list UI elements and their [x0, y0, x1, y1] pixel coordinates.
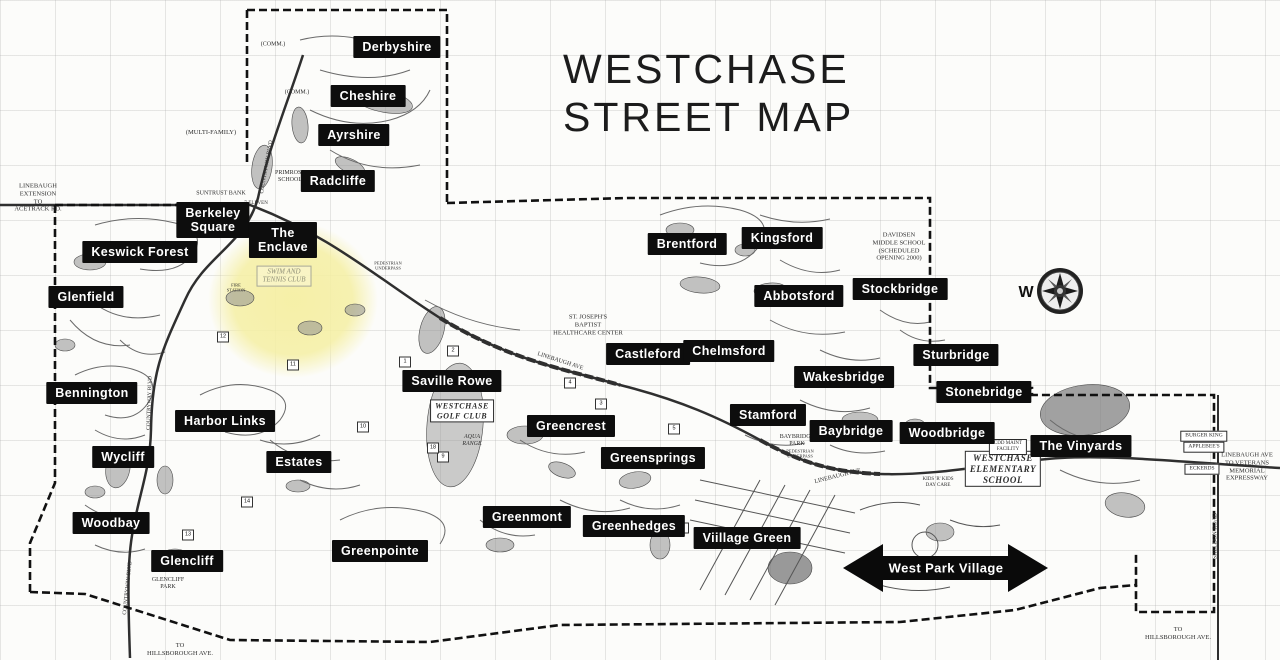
neighborhood-label-sturbridge: Sturbridge: [913, 344, 998, 366]
map-text-to-hillsborough-sw: TOHILLSBOROUGH AVE.: [147, 642, 213, 658]
map-text-applebees: APPLEBEE'S: [1183, 442, 1224, 453]
neighborhood-label-radcliffe: Radcliffe: [301, 170, 375, 192]
neighborhood-label-cheshire: Cheshire: [331, 85, 406, 107]
neighborhood-label-the-vinyards: The Vinyards: [1030, 435, 1131, 457]
neighborhood-label-castleford: Castleford: [606, 343, 690, 365]
map-text-to-hillsborough-se: TOHILLSBOROUGH AVE.: [1145, 626, 1211, 642]
golf-hole-marker-18: 18: [427, 443, 439, 454]
neighborhood-label-woodbay: Woodbay: [73, 512, 150, 534]
neighborhood-label-greenpointe: Greenpointe: [332, 540, 428, 562]
westchase-street-map: WESTCHASE STREET MAP W DerbyshireCheshir…: [0, 0, 1280, 660]
map-title-line2: STREET MAP: [563, 94, 854, 142]
neighborhood-label-greenhedges: Greenhedges: [583, 515, 685, 537]
map-text-burger-king: BURGER KING: [1180, 431, 1227, 442]
golf-hole-marker-4: 4: [564, 378, 576, 389]
golf-hole-marker-2: 2: [447, 346, 459, 357]
map-text-fire-station: FIRESTATION: [227, 283, 245, 294]
neighborhood-label-greensprings: Greensprings: [601, 447, 705, 469]
neighborhood-label-abbotsford: Abbotsford: [754, 285, 843, 307]
neighborhood-label-derbyshire: Derbyshire: [353, 36, 440, 58]
golf-hole-marker-5: 5: [668, 424, 680, 435]
map-text-sheldon-road: SHELDON ROAD: [1212, 513, 1219, 560]
neighborhood-label-the-enclave: TheEnclave: [249, 222, 317, 258]
neighborhood-label-bennington: Bennington: [46, 382, 137, 404]
neighborhood-label-kingsford: Kingsford: [742, 227, 823, 249]
neighborhood-label-greenmont: Greenmont: [483, 506, 571, 528]
neighborhood-label-stonebridge: Stonebridge: [936, 381, 1031, 403]
neighborhood-label-harbor-links: Harbor Links: [175, 410, 275, 432]
map-text-davidsen-school: DAVIDSENMIDDLE SCHOOL(SCHEDULEDOPENING 2…: [873, 231, 926, 262]
golf-hole-marker-3: 3: [595, 399, 607, 410]
neighborhood-label-brentford: Brentford: [648, 233, 727, 255]
map-text-linebaugh-veterans: LINEBAUGH AVETO VETERANSMEMORIALEXPRESSW…: [1221, 451, 1273, 482]
compass-west-letter: W: [1018, 284, 1033, 302]
map-text-comm-1: (COMM.): [261, 41, 286, 48]
neighborhood-label-chelmsford: Chelmsford: [683, 340, 774, 362]
neighborhood-label-greencrest: Greencrest: [527, 415, 615, 437]
neighborhood-label-saville-rowe: Saville Rowe: [402, 370, 501, 392]
neighborhood-label-village-green: Viillage Green: [694, 527, 801, 549]
neighborhood-label-glenfield: Glenfield: [48, 286, 123, 308]
golf-hole-marker-12: 12: [217, 332, 229, 343]
golf-hole-marker-1: 1: [399, 357, 411, 368]
map-text-comm-2: (COMM.): [285, 89, 310, 96]
map-text-glencliff-park: GLENCLIFFPARK: [152, 577, 184, 591]
neighborhood-label-stamford: Stamford: [730, 404, 806, 426]
neighborhood-label-keswick-forest: Keswick Forest: [82, 241, 197, 263]
map-text-multi-family: (MULTI-FAMILY): [186, 129, 236, 137]
map-title-line1: WESTCHASE: [563, 46, 854, 94]
map-text-st-josephs: ST. JOSEPH'SBAPTISTHEALTHCARE CENTER: [553, 313, 623, 336]
west-park-village-label: West Park Village: [889, 561, 1004, 576]
neighborhood-label-berkeley-square: BerkeleySquare: [176, 202, 249, 238]
map-text-eckerds: ECKERDS: [1184, 464, 1219, 475]
golf-hole-marker-13: 13: [182, 530, 194, 541]
map-text-swim-tennis-club: SWIM ANDTENNIS CLUB: [257, 266, 312, 287]
compass-rose-icon: [1037, 268, 1083, 314]
neighborhood-label-baybridge: Baybridge: [810, 420, 893, 442]
map-text-westchase-golf-club: WESTCHASEGOLF CLUB: [430, 399, 494, 422]
map-text-suntrust-bank: SUNTRUST BANK: [196, 190, 245, 197]
golf-hole-marker-11: 11: [287, 360, 299, 371]
neighborhood-label-wycliff: Wycliff: [92, 446, 154, 468]
map-text-kids-r-kids: KIDS 'R' KIDSDAY CARE: [923, 477, 954, 489]
neighborhood-label-ayrshire: Ayrshire: [318, 124, 389, 146]
neighborhood-label-estates: Estates: [266, 451, 331, 473]
map-text-aqua-range: AQUARANGE: [462, 434, 481, 448]
golf-hole-marker-10: 10: [357, 422, 369, 433]
neighborhood-label-wakesbridge: Wakesbridge: [794, 366, 894, 388]
map-text-cdd-maint: CDD MAINTFACILITY: [989, 439, 1027, 455]
map-title: WESTCHASE STREET MAP: [563, 46, 854, 141]
neighborhood-label-stockbridge: Stockbridge: [853, 278, 948, 300]
map-text-ped-underpass-1: PEDESTRIANUNDERPASS: [786, 449, 814, 460]
map-text-linebaugh-extension: LINEBAUGHEXTENSIONTOACETRACK RD.: [14, 182, 61, 213]
map-text-ped-underpass-2: PEDESTRIANUNDERPASS: [374, 261, 402, 272]
golf-hole-marker-14: 14: [241, 497, 253, 508]
neighborhood-label-woodbridge: Woodbridge: [900, 422, 995, 444]
neighborhood-label-glencliff: Glencliff: [151, 550, 223, 572]
